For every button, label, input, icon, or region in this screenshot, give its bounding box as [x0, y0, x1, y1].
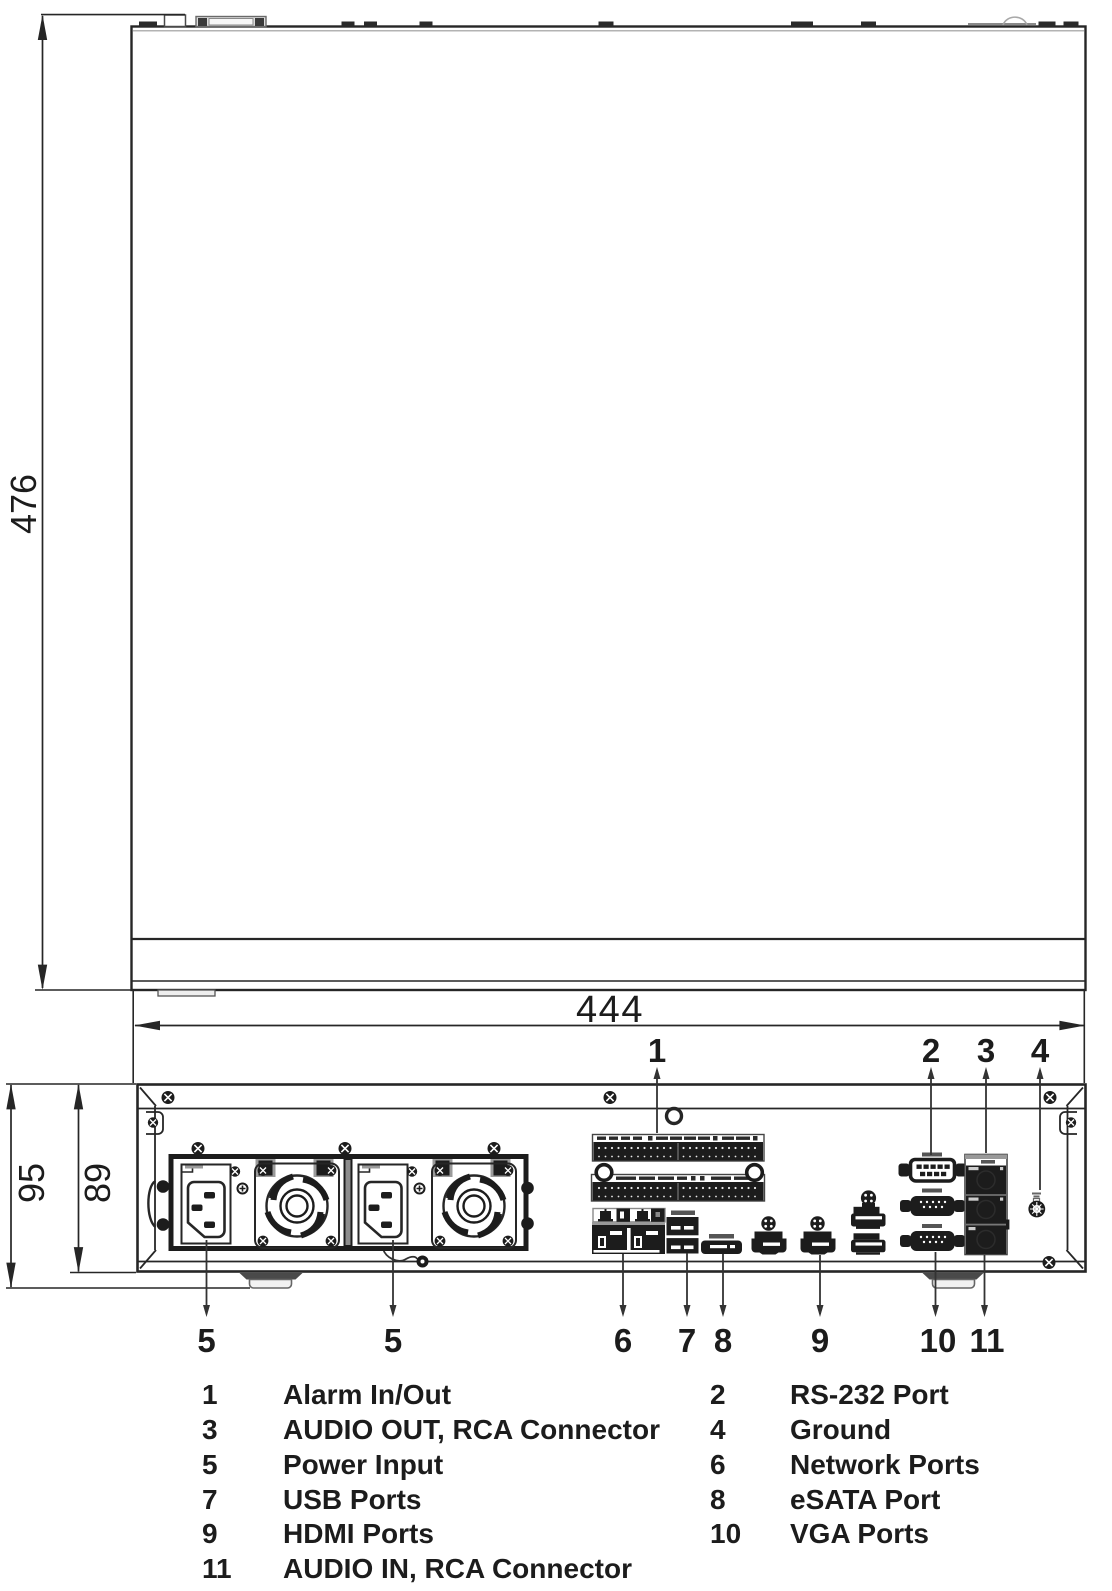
svg-text:AUDIO IN, RCA Connector: AUDIO IN, RCA Connector	[283, 1553, 632, 1584]
svg-text:Ground: Ground	[790, 1414, 891, 1445]
svg-text:10: 10	[710, 1518, 741, 1549]
svg-text:5: 5	[197, 1322, 215, 1359]
svg-text:8: 8	[710, 1484, 726, 1515]
svg-text:5: 5	[384, 1322, 402, 1359]
svg-text:eSATA Port: eSATA Port	[790, 1484, 940, 1515]
svg-text:6: 6	[710, 1449, 726, 1480]
svg-text:476: 476	[3, 474, 44, 534]
svg-text:1: 1	[202, 1379, 218, 1410]
svg-text:7: 7	[202, 1484, 218, 1515]
svg-text:89: 89	[77, 1163, 118, 1203]
svg-text:9: 9	[811, 1322, 829, 1359]
svg-text:Alarm In/Out: Alarm In/Out	[283, 1379, 451, 1410]
svg-text:8: 8	[714, 1322, 732, 1359]
svg-text:VGA Ports: VGA Ports	[790, 1518, 929, 1549]
svg-text:2: 2	[922, 1032, 940, 1069]
svg-text:11: 11	[202, 1553, 232, 1584]
svg-text:444: 444	[576, 989, 644, 1031]
svg-text:RS-232 Port: RS-232 Port	[790, 1379, 949, 1410]
svg-text:AUDIO OUT, RCA Connector: AUDIO OUT, RCA Connector	[283, 1414, 660, 1445]
svg-text:6: 6	[614, 1322, 632, 1359]
svg-text:USB Ports: USB Ports	[283, 1484, 421, 1515]
svg-text:11: 11	[970, 1322, 1005, 1359]
svg-text:3: 3	[202, 1414, 218, 1445]
svg-text:4: 4	[1031, 1032, 1050, 1069]
svg-text:4: 4	[710, 1414, 726, 1445]
svg-text:9: 9	[202, 1518, 218, 1549]
svg-text:10: 10	[920, 1322, 957, 1359]
svg-text:Power Input: Power Input	[283, 1449, 443, 1480]
svg-text:HDMI Ports: HDMI Ports	[283, 1518, 434, 1549]
svg-text:7: 7	[678, 1322, 696, 1359]
svg-text:3: 3	[977, 1032, 995, 1069]
svg-text:95: 95	[11, 1163, 52, 1203]
svg-text:Network Ports: Network Ports	[790, 1449, 980, 1480]
svg-text:1: 1	[648, 1032, 666, 1069]
svg-text:2: 2	[710, 1379, 726, 1410]
svg-text:5: 5	[202, 1449, 218, 1480]
